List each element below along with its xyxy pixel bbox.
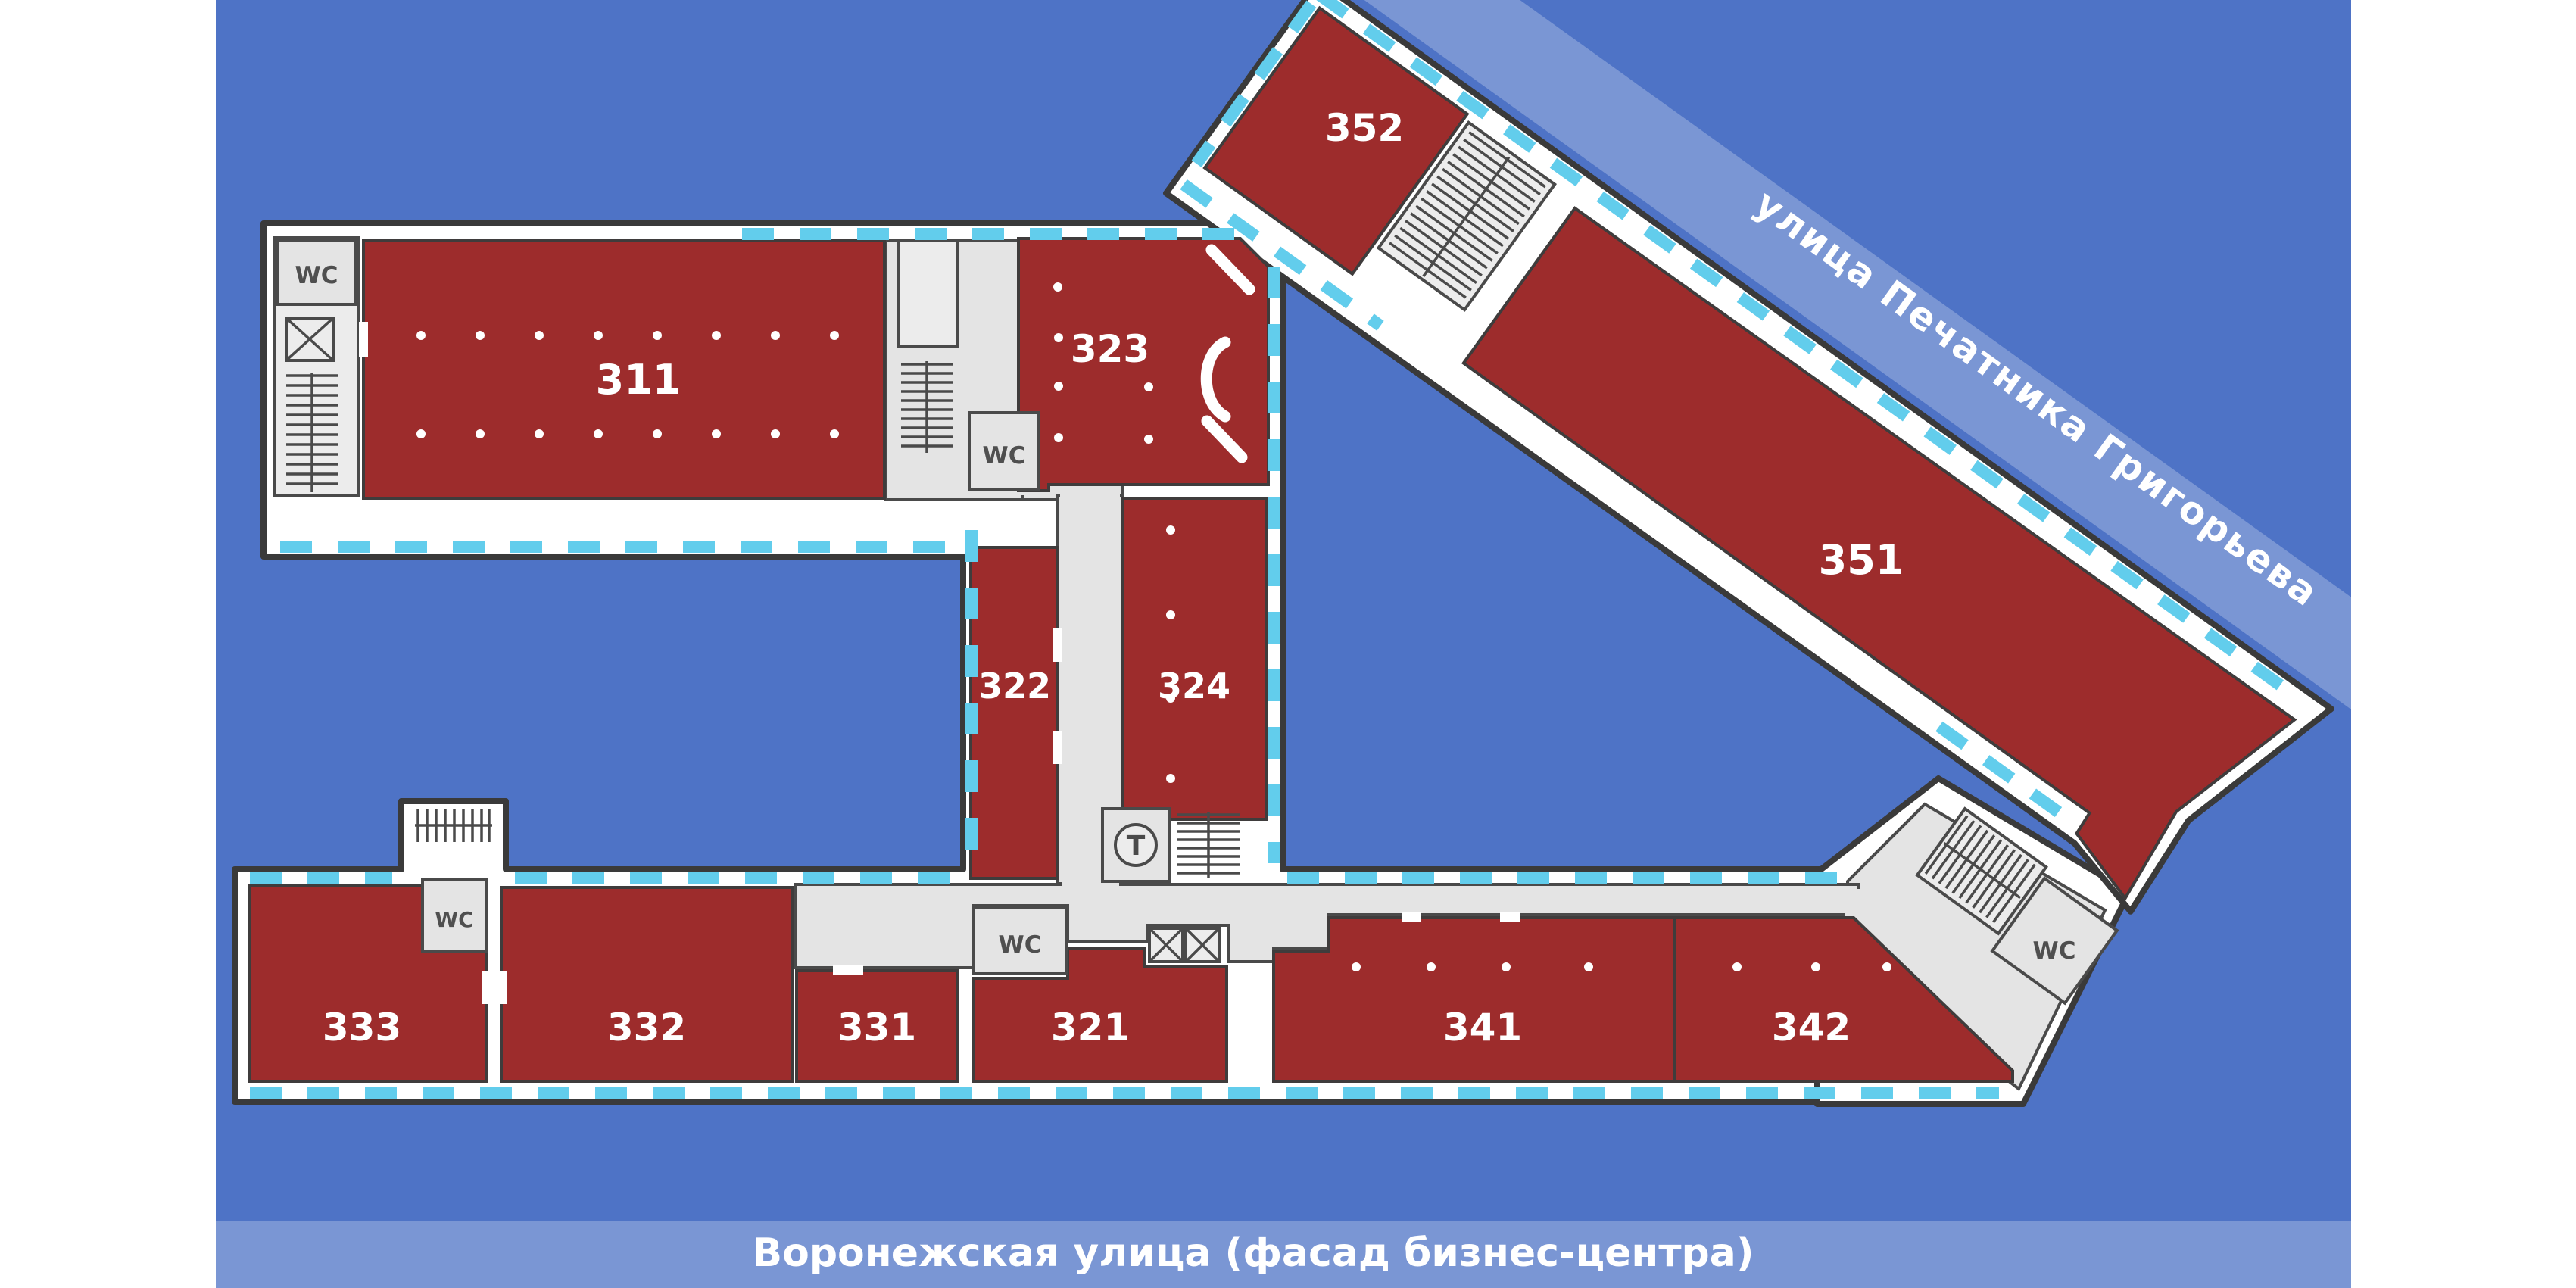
room-label-322: 322 xyxy=(978,666,1051,706)
wc-label: WC xyxy=(999,931,1042,959)
wc-label: WC xyxy=(435,907,473,932)
room-322[interactable] xyxy=(971,547,1058,878)
door-gap xyxy=(482,971,507,1004)
wc-label: WC xyxy=(295,262,338,289)
room-label-333: 333 xyxy=(323,1006,401,1049)
door-gap xyxy=(1053,731,1062,764)
room-label-351: 351 xyxy=(1819,536,1904,584)
door-gap xyxy=(1402,912,1421,922)
door-gap xyxy=(833,965,863,975)
door-gap xyxy=(1500,912,1520,922)
floorplan-page: 311 323 322 324 333 332 331 321 341 342 … xyxy=(0,0,2576,1288)
stairs-icon xyxy=(415,809,492,842)
room-332[interactable] xyxy=(501,887,792,1081)
service-room xyxy=(898,241,957,347)
room-324[interactable] xyxy=(1122,498,1266,819)
room-label-331: 331 xyxy=(837,1006,916,1049)
door-gap xyxy=(359,322,368,357)
wc-label: WC xyxy=(2033,937,2076,965)
room-label-311: 311 xyxy=(596,356,681,404)
door-gap xyxy=(1053,628,1062,662)
bottom-street-label: Воронежская улица (фасад бизнес-центра) xyxy=(752,1230,1754,1276)
corridor-opening xyxy=(1060,494,1120,503)
t-label: T xyxy=(1127,831,1146,862)
room-label-323: 323 xyxy=(1071,327,1149,371)
room-label-332: 332 xyxy=(607,1006,686,1049)
room-label-324: 324 xyxy=(1158,666,1230,706)
wc-label: WC xyxy=(983,442,1026,469)
room-label-341: 341 xyxy=(1443,1006,1522,1049)
room-label-352: 352 xyxy=(1325,106,1404,150)
room-341[interactable] xyxy=(1274,918,1675,1081)
floorplan-map: 311 323 322 324 333 332 331 321 341 342 … xyxy=(0,0,2576,1288)
room-label-342: 342 xyxy=(1772,1006,1851,1049)
room-label-321: 321 xyxy=(1051,1006,1130,1049)
